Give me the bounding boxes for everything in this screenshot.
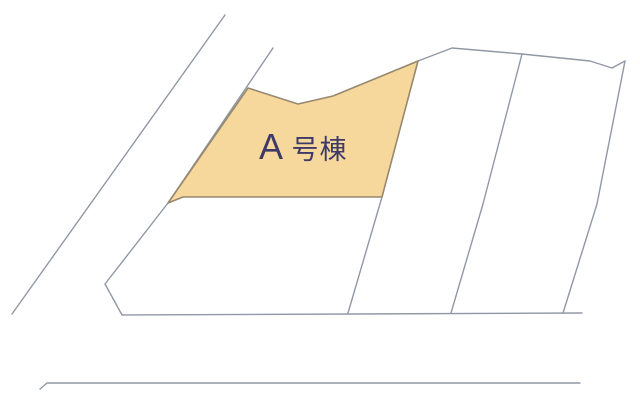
lot-east-extension-line	[348, 197, 382, 313]
parcel-divider-line-1	[451, 54, 522, 313]
boundary-lines	[12, 15, 625, 389]
parcel-divider-line-2	[563, 61, 625, 313]
lot-a-shape	[168, 61, 418, 203]
lot-a-label-latin: A	[259, 126, 284, 167]
site-plan-drawing: A 号棟	[0, 0, 640, 407]
road-upper-left-line	[12, 15, 225, 314]
site-plan-canvas: A 号棟	[0, 0, 640, 407]
lot-a-label-kanji: 号棟	[291, 135, 347, 165]
south-road-line	[40, 383, 580, 389]
